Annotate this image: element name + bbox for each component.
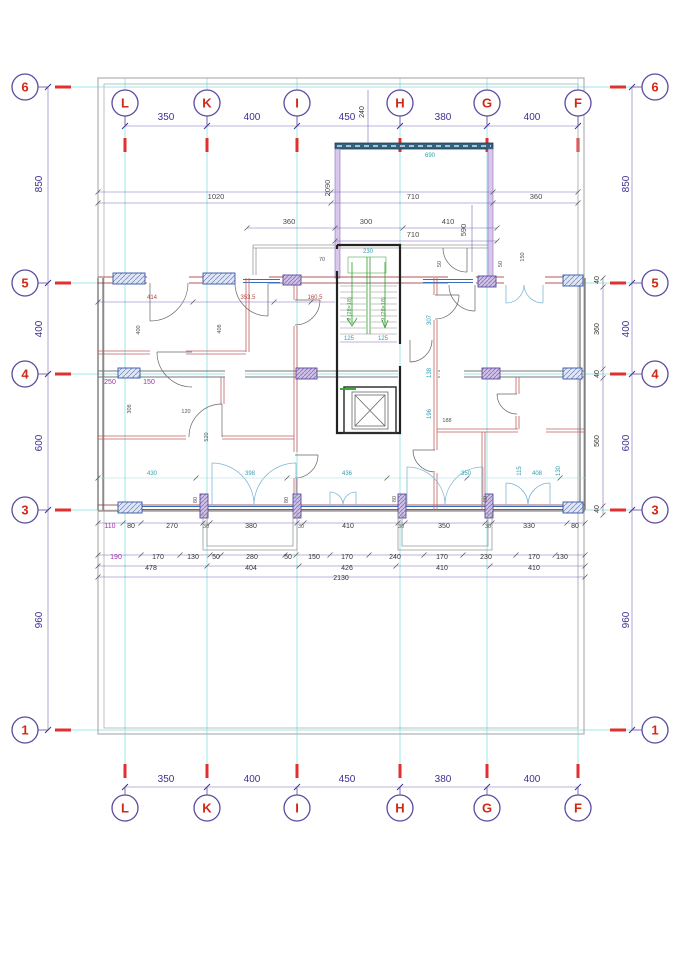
dimension-label: 80 (392, 496, 398, 502)
grid-bubble-label: 4 (651, 367, 659, 382)
dimension-label: 960 (34, 611, 45, 628)
dimension-label: 430 (147, 471, 158, 477)
grid-bubble-label: I (295, 96, 299, 111)
dimension-label: 240 (389, 554, 401, 561)
dimension-label: 80 (571, 523, 579, 530)
dimension-label: 30 (298, 524, 304, 530)
dimension-label: 350 (438, 523, 450, 530)
dimension-label: 30 (203, 524, 209, 530)
dimension-label: 110 (104, 523, 115, 530)
dimension-label: 400 (136, 325, 142, 334)
dimension-label: 560 (594, 435, 601, 447)
grid-bubble-label: 6 (651, 80, 658, 95)
grid-red-tick (124, 764, 127, 778)
dimension-label: 80 (284, 497, 290, 503)
dimension-label: 40 (594, 276, 601, 284)
dimension-label: 150 (520, 252, 526, 261)
dimension-label: 80 (193, 497, 199, 503)
dimension-label: 1020 (208, 192, 225, 201)
grid-bubble-label: K (202, 801, 212, 816)
dimension-label: 138 (427, 367, 433, 378)
grid-bubble-label: 1 (21, 723, 28, 738)
dimension-label: 50 (498, 261, 504, 267)
dimension-label: 690 (425, 153, 436, 159)
dimension-text-layer: 3504004502403804003504004503804008504006… (34, 106, 632, 785)
grid-red-tick (124, 138, 127, 152)
balconies (203, 512, 492, 550)
dimension-label: 410 (442, 217, 455, 226)
grid-bubble-label: 6 (21, 80, 28, 95)
dimension-label: 590 (459, 224, 468, 237)
dimension-label: 520 (204, 432, 210, 441)
dimension-label: 398 (245, 471, 256, 477)
dimension-label: 30 (485, 524, 491, 530)
dimension-label: 230 (480, 554, 492, 561)
dimension-label: 380 (435, 112, 452, 123)
grid-bubble-label: 1 (651, 723, 658, 738)
grid-red-tick (296, 764, 299, 778)
dimension-label: 600 (621, 434, 632, 451)
dimension-label: 70 (319, 257, 325, 263)
dimension-label: 188 (442, 418, 451, 424)
dimension-label: 80 (483, 496, 489, 502)
grid-bubble-label: L (121, 96, 129, 111)
dimension-label: 280 (246, 554, 258, 561)
dimension-label: 380 (245, 523, 257, 530)
grid-red-tick (55, 729, 71, 732)
dimension-label: 350 (158, 774, 175, 785)
dimension-label: 80 (127, 523, 135, 530)
grid-red-tick (610, 509, 626, 512)
dimension-label: 350 (461, 471, 472, 477)
dimension-label: 240 (359, 106, 366, 118)
grid-bubble-label: F (574, 96, 582, 111)
dimension-label: 408 (217, 324, 223, 333)
dimension-label: 30 (398, 524, 404, 530)
dimension-label: 850 (621, 175, 632, 192)
dimension-label: 414 (147, 295, 158, 301)
grid-bubble-label: I (295, 801, 299, 816)
dimension-label: 190 (110, 554, 122, 561)
dimension-label: 400 (524, 112, 541, 123)
dimension-label: 426 (341, 565, 353, 572)
dimension-label: 125 (378, 336, 389, 342)
dimension-label: 400 (244, 112, 261, 123)
grid-red-tick (486, 764, 489, 778)
dimension-label: 170 (152, 554, 164, 561)
dimension-label: 400 (621, 320, 632, 337)
dimension-label: 9 (28×18) (347, 297, 353, 321)
dimension-label: 360 (530, 192, 543, 201)
dimension-label: 130 (556, 465, 562, 476)
dimension-label: 270 (166, 523, 178, 530)
grid-bubble-label: 4 (21, 367, 29, 382)
dimension-label: 400 (34, 320, 45, 337)
grid-red-tick (55, 509, 71, 512)
dimension-label: 960 (621, 611, 632, 628)
grid-red-tick (55, 373, 71, 376)
grid-bubble-label: 3 (21, 503, 28, 518)
stair-flight-arrows (347, 257, 388, 334)
grid-bubble-label: G (482, 801, 492, 816)
dimension-label: 380 (435, 774, 452, 785)
grid-red-tick (206, 764, 209, 778)
grid-bubble-label: 5 (651, 276, 658, 291)
dimension-label: 170 (528, 554, 540, 561)
elevator-x-mark (355, 395, 385, 426)
dimension-label: 130 (556, 554, 568, 561)
floor-plan-drawing: LLKKIIHHGGFF6655443311 35040045024038040… (0, 0, 679, 960)
dimension-label: 710 (407, 230, 420, 239)
dimension-label: 9 (28×18) (381, 297, 387, 321)
dimension-label: 360 (594, 323, 601, 335)
dimension-label: 850 (34, 175, 45, 192)
grid-red-tick (296, 138, 299, 152)
dimension-label: 400 (524, 774, 541, 785)
dimension-label: 130 (187, 554, 199, 561)
dimension-label: 160.5 (307, 295, 323, 301)
dimension-label: 404 (245, 565, 257, 572)
grid-bubble-label: 3 (651, 503, 658, 518)
dimension-label: 40 (594, 505, 601, 513)
dimension-label: 410 (528, 565, 540, 572)
dimension-label: 478 (145, 565, 157, 572)
grid-red-tick (206, 138, 209, 152)
dimension-label: 450 (339, 112, 356, 123)
dimension-label: 410 (342, 523, 354, 530)
dimension-label: 50 (212, 554, 220, 561)
dimension-lines (48, 87, 632, 787)
elevator (340, 387, 396, 433)
grid-red-tick (55, 86, 71, 89)
grid-bubble-label: G (482, 96, 492, 111)
dimension-label: 350 (158, 112, 175, 123)
grid-red-tick (610, 86, 626, 89)
grid-bubble-label: K (202, 96, 212, 111)
grid-bubble-label: 5 (21, 276, 28, 291)
grid-red-tick (610, 729, 626, 732)
dimension-label: 360 (283, 217, 296, 226)
dimension-label: 308 (127, 404, 133, 413)
grid-red-tick (399, 764, 402, 778)
grid-bubble-label: L (121, 801, 129, 816)
grid-bubble-label: F (574, 801, 582, 816)
dimension-label: 300 (360, 217, 373, 226)
dimension-label: 170 (341, 554, 353, 561)
dimension-label: 353.5 (240, 295, 256, 301)
terrace-block (253, 143, 493, 278)
dimension-label: 710 (407, 192, 420, 201)
dimension-label: 170 (436, 554, 448, 561)
dimension-label: 330 (523, 523, 535, 530)
dimension-label: 230 (363, 249, 374, 255)
lot-boundary (98, 78, 584, 734)
floor-plan-page: LLKKIIHHGGFF6655443311 35040045024038040… (0, 0, 679, 960)
dimension-label: 250 (104, 379, 116, 386)
dimension-label: 50 (284, 554, 292, 561)
dimension-label: 436 (342, 471, 353, 477)
dimension-label: 125 (344, 336, 355, 342)
dimension-label: 115 (517, 466, 523, 476)
dimension-label: 50 (437, 261, 443, 267)
grid-red-tick (55, 282, 71, 285)
dimension-label: 40 (594, 370, 601, 378)
dimension-label: 307 (427, 314, 433, 325)
grid-red-tick (577, 764, 580, 778)
grid-red-tick (610, 373, 626, 376)
dimension-label: 2130 (333, 575, 349, 582)
dimension-label: 150 (143, 379, 155, 386)
dimension-label: 2090 (323, 180, 332, 197)
dimension-label: 196 (427, 408, 433, 419)
dimension-label: 450 (339, 774, 356, 785)
grid-bubble-label: H (395, 96, 404, 111)
dimension-label: 408 (532, 471, 543, 477)
dimension-label: 600 (34, 434, 45, 451)
dimension-label: 400 (244, 774, 261, 785)
dimension-label: 150 (308, 554, 320, 561)
grid-red-tick (610, 282, 626, 285)
grid-bubble-label: H (395, 801, 404, 816)
dimension-label: 410 (436, 565, 448, 572)
dimension-label: 120 (181, 409, 190, 415)
